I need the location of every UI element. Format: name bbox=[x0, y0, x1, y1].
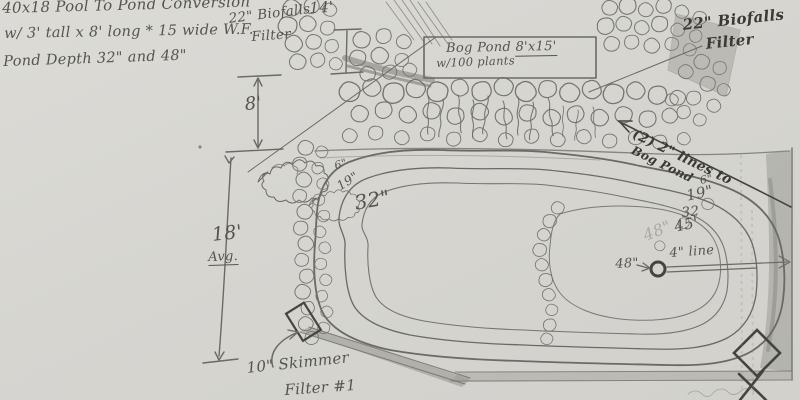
biofalls-left-label-line2: Filter bbox=[251, 28, 292, 44]
hatch-shading bbox=[386, 0, 452, 46]
dimension-14ft-label: 14' bbox=[309, 0, 334, 16]
biofalls-left-pointer bbox=[248, 37, 436, 172]
bottom-drain-circle bbox=[651, 262, 665, 276]
bleed-through-marks bbox=[741, 155, 753, 395]
sketch-paper: 40x18 Pool To Pond Conversion w/ 3' tall… bbox=[0, 0, 800, 400]
dimension-8ft-label: 8' bbox=[244, 95, 263, 114]
dimension-18ft-qualifier: Avg. bbox=[208, 250, 238, 266]
paper-speck bbox=[198, 145, 201, 148]
bog-pond-size: 8'x15' bbox=[515, 39, 556, 57]
dimension-18ft-label: 18' bbox=[211, 223, 243, 245]
drain-depth-label: 48" bbox=[615, 257, 639, 271]
shelf-depth-left-32: 32" bbox=[353, 187, 391, 213]
bog-pond-plants-label: w/100 plants bbox=[436, 55, 515, 69]
drain-pipe-label: 4" line bbox=[669, 244, 715, 260]
bottom-drain bbox=[637, 256, 790, 276]
